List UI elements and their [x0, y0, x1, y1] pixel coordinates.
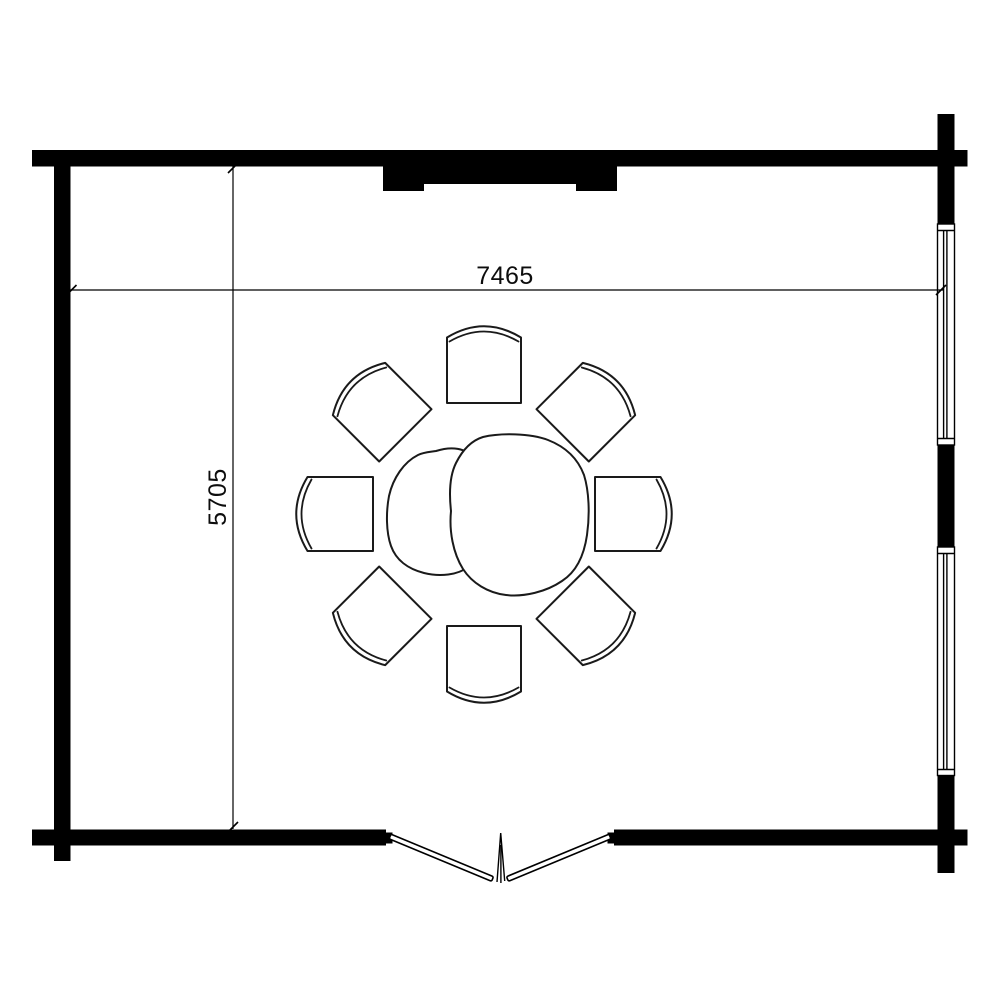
chair-south: [447, 626, 521, 703]
top-opening-panel: [383, 165, 617, 191]
left-wall: [54, 150, 71, 861]
window-lower: [938, 547, 955, 776]
dining-set: [296, 326, 672, 703]
chair-north-west: [325, 355, 432, 462]
chair-east: [595, 477, 672, 551]
double-door: [386, 833, 614, 884]
dimension-width-label: 7465: [476, 262, 534, 290]
dimension-horizontal: 7465: [65, 262, 946, 295]
round-table-front-lobe: [450, 434, 589, 595]
chair-north: [447, 326, 521, 403]
dimension-vertical: 5705: [204, 163, 238, 832]
door-leaf-left: [389, 834, 493, 881]
right-wall-middle-pier: [938, 445, 955, 547]
right-wall-top-segment: [938, 114, 955, 224]
top-wall: [32, 150, 968, 167]
window-lower-frame: [938, 547, 955, 776]
floor-plan: 7465 5705: [0, 0, 1000, 1000]
right-wall-bottom-segment: [938, 776, 955, 874]
top-panel-tab-right: [576, 165, 617, 191]
floor-plan-canvas: 7465 5705: [0, 0, 1000, 1000]
door-leaf-right: [506, 834, 610, 881]
dimension-height-label: 5705: [204, 468, 232, 526]
chair-west: [296, 477, 373, 551]
window-upper: [938, 224, 955, 445]
top-panel-tab-left: [383, 165, 424, 191]
window-upper-frame: [938, 224, 955, 445]
bottom-wall-right-segment: [614, 830, 968, 846]
chair-south-west: [325, 567, 432, 674]
bottom-wall-left-segment: [32, 830, 386, 846]
